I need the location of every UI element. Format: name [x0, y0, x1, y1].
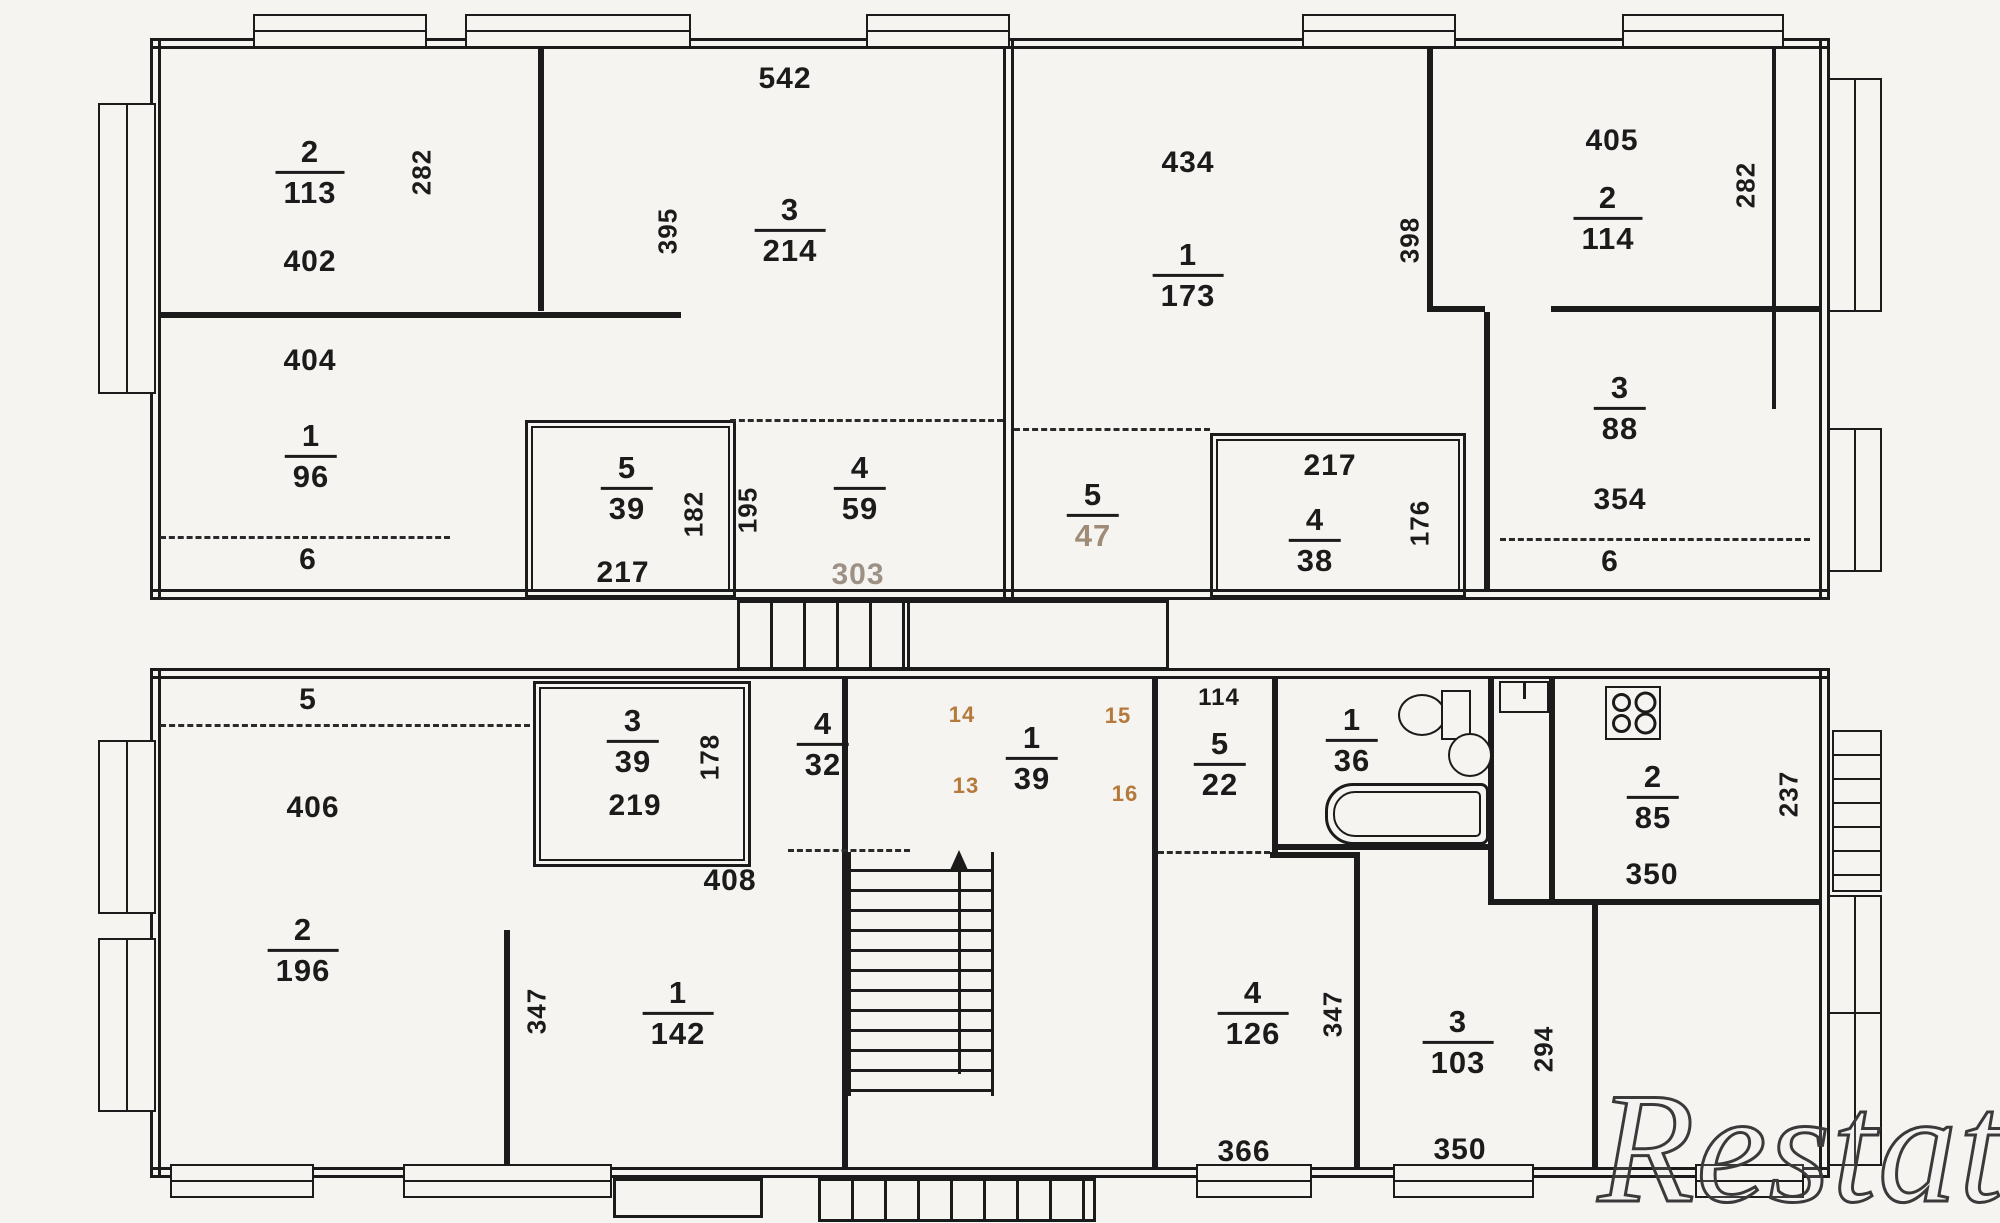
room-number: 1 [1326, 704, 1378, 739]
room-label-2-114: 2 114 [1573, 182, 1642, 254]
entrance-porch [818, 1178, 1096, 1222]
dimension-label: 398 [1395, 217, 1426, 263]
dimension-label: 542 [758, 62, 811, 96]
room-label-4-126: 4 126 [1218, 977, 1289, 1049]
room-area: 22 [1194, 763, 1246, 801]
room-label-1-142: 1 142 [643, 977, 714, 1049]
sink-icon [1448, 733, 1492, 777]
dimension-label: 217 [596, 556, 649, 590]
room-area: 96 [285, 455, 337, 493]
lower-left-partition [504, 930, 510, 1168]
room-label-3-214: 3 214 [755, 194, 826, 266]
dimension-label: 347 [522, 988, 553, 1034]
window [1828, 78, 1882, 312]
stair-direction-arrow [958, 868, 961, 1074]
bathtub-icon [1325, 783, 1489, 845]
window [98, 938, 156, 1112]
dimension-label: 405 [1585, 124, 1638, 158]
upper-right-partition [1427, 49, 1433, 311]
bathroom-label-1-36: 1 36 [1326, 704, 1378, 776]
dimension-label: 6 [299, 543, 317, 577]
upper-left-dashed-line-2 [730, 419, 1003, 422]
upper-right-inner-wall [1484, 312, 1490, 590]
hall-label-5-22: 5 22 [1194, 728, 1246, 800]
room-number: 4 [834, 452, 886, 487]
room-area: 214 [755, 229, 826, 267]
room-number: 2 [275, 136, 344, 171]
dimension-label: 182 [679, 491, 710, 537]
room-area: 59 [834, 487, 886, 525]
upper-right-dashed-line-2 [1500, 538, 1810, 541]
dimension-label: 395 [653, 208, 684, 254]
room-103-wall-left [1354, 852, 1360, 1168]
window [1622, 14, 1784, 48]
upper-outer-wall-bottom [150, 589, 1830, 600]
dimension-label: 402 [283, 245, 336, 279]
room-label-2-196: 2 196 [268, 914, 339, 986]
room-area: 113 [275, 171, 344, 209]
dimension-label: 282 [1731, 162, 1762, 208]
dimension-label: 350 [1625, 858, 1678, 892]
upper-left-dashed-line [160, 536, 450, 539]
stair-mark: 16 [1112, 781, 1138, 807]
room-area: 47 [1067, 514, 1119, 552]
closet-label-5-39: 5 39 [601, 452, 653, 524]
dimension-label: 354 [1593, 483, 1646, 517]
window [866, 14, 1010, 48]
room-number: 3 [1423, 1006, 1494, 1041]
watermark: Restate [1598, 1058, 2000, 1223]
hall-label-4-32: 4 32 [797, 708, 849, 780]
room-area: 39 [1006, 757, 1058, 795]
upper-right-dashed-line [1014, 428, 1210, 431]
hall-label-4-59: 4 59 [834, 452, 886, 524]
room-number: 4 [797, 708, 849, 743]
upper-right-partition-horizontal-b [1551, 306, 1820, 312]
upper-right-partition-horizontal-a [1427, 306, 1485, 312]
dimension-label: 5 [299, 683, 317, 717]
lower-outer-wall-top [150, 668, 1830, 679]
kitchen-wall-left [1549, 679, 1555, 905]
window [1828, 895, 1882, 1014]
dimension-label: 178 [695, 734, 726, 780]
room-area: 85 [1627, 796, 1679, 834]
room-label-3-88: 3 88 [1594, 372, 1646, 444]
dimension-label: 114 [1198, 684, 1240, 712]
lower-door-dashed-b [1158, 851, 1270, 854]
room-area: 36 [1326, 739, 1378, 777]
room-number: 2 [1573, 182, 1642, 217]
lower-left-dashed-line [160, 724, 530, 727]
room-label-1-96: 1 96 [285, 420, 337, 492]
entrance-landing [907, 600, 1169, 670]
room-number: 5 [1194, 728, 1246, 763]
dimension-label: 408 [703, 864, 756, 898]
dimension-label: 176 [1405, 500, 1436, 546]
window [98, 740, 156, 914]
window [1302, 14, 1456, 48]
staircase [848, 852, 994, 1096]
lower-outer-wall-bottom [150, 1167, 1830, 1178]
hall-label-1-39: 1 39 [1006, 722, 1058, 794]
room-number: 3 [1594, 372, 1646, 407]
upper-left-partition [538, 49, 544, 311]
window [253, 14, 427, 48]
closet-label-3-39: 3 39 [607, 705, 659, 777]
hall-label-5-47: 5 47 [1067, 479, 1119, 551]
room-area: 126 [1218, 1012, 1289, 1050]
dimension-label: 282 [407, 149, 438, 195]
room-label-2-113: 2 113 [275, 136, 344, 208]
dimension-label: 6 [1601, 545, 1619, 579]
dimension-label: 404 [283, 344, 336, 378]
room-number: 3 [607, 705, 659, 740]
dimension-label: 195 [733, 487, 764, 533]
room-area: 88 [1594, 407, 1646, 445]
bathroom-wall-left [1272, 679, 1278, 852]
room-number: 5 [601, 452, 653, 487]
dimension-label: 366 [1217, 1135, 1270, 1169]
entry-step [613, 1178, 763, 1218]
stove-icon [1605, 686, 1661, 740]
floor-plan: 2 113 282 402 404 1 96 6 542 395 3 214 5… [0, 0, 2000, 1223]
kitchen-label-2-85: 2 85 [1627, 761, 1679, 833]
room-number: 2 [268, 914, 339, 949]
upper-center-wall [1003, 38, 1014, 600]
stair-arrow-head [950, 850, 968, 870]
stair-mark: 14 [949, 702, 975, 728]
window [1828, 428, 1882, 572]
room-number: 2 [1627, 761, 1679, 796]
window [1393, 1164, 1534, 1198]
stair-mark: 13 [953, 773, 979, 799]
window [465, 14, 691, 48]
stairwell-wall-right [1152, 679, 1158, 1169]
upper-left-partition-horizontal [161, 312, 681, 318]
toilet-icon [1398, 694, 1446, 736]
room-area: 38 [1289, 539, 1341, 577]
entrance-steps [737, 600, 913, 670]
room-area: 103 [1423, 1041, 1494, 1079]
window [98, 103, 156, 394]
window [1196, 1164, 1312, 1198]
dimension-label: 347 [1318, 991, 1349, 1037]
dimension-label: 294 [1529, 1026, 1560, 1072]
dimension-label: 303 [831, 558, 884, 592]
room-area: 39 [601, 487, 653, 525]
room-area: 39 [607, 740, 659, 778]
door-icon [1499, 681, 1549, 713]
window [403, 1164, 612, 1198]
dimension-label: 434 [1161, 146, 1214, 180]
kitchen-wall-bottom [1494, 899, 1820, 905]
room-number: 5 [1067, 479, 1119, 514]
room-number: 4 [1289, 504, 1341, 539]
dimension-label: 350 [1433, 1133, 1486, 1167]
room-number: 1 [285, 420, 337, 455]
room-area: 32 [797, 743, 849, 781]
room-area: 196 [268, 949, 339, 987]
dimension-label: 219 [608, 789, 661, 823]
room-label-3-103: 3 103 [1423, 1006, 1494, 1078]
upper-window-bay-line [1772, 49, 1776, 409]
dimension-label: 217 [1303, 449, 1356, 483]
room-number: 1 [1006, 722, 1058, 757]
room-area: 142 [643, 1012, 714, 1050]
balcony [1832, 730, 1882, 892]
room-number: 1 [643, 977, 714, 1012]
room-label-1-173: 1 173 [1153, 239, 1224, 311]
room-number: 4 [1218, 977, 1289, 1012]
dimension-label: 406 [286, 791, 339, 825]
room-area: 173 [1153, 274, 1224, 312]
room-126-top-wall [1270, 852, 1358, 858]
room-number: 1 [1153, 239, 1224, 274]
stair-mark: 15 [1105, 703, 1131, 729]
room-number: 3 [755, 194, 826, 229]
window [170, 1164, 314, 1198]
closet-label-4-38: 4 38 [1289, 504, 1341, 576]
dimension-label: 237 [1774, 771, 1805, 817]
room-area: 114 [1573, 217, 1642, 255]
